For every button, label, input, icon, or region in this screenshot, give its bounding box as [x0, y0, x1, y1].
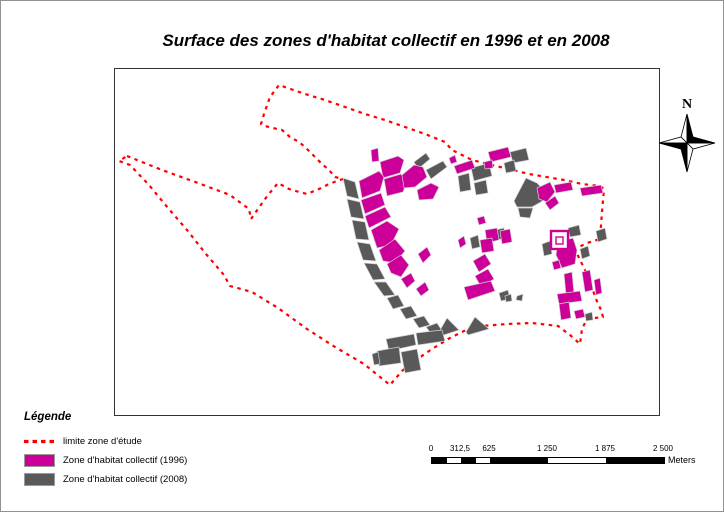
zone-1996-polygon — [402, 165, 427, 188]
zone-2008-polygon — [504, 160, 516, 173]
scale-bar-segment — [606, 458, 664, 463]
zone-1996-polygon — [458, 236, 466, 248]
zone-1996-polygon — [554, 182, 573, 193]
scale-bar-segment — [476, 458, 491, 463]
scale-tick-label: 0 — [429, 444, 433, 453]
zone-1996-polygon — [559, 302, 571, 320]
scale-tick-label: 1 250 — [537, 444, 557, 453]
zone-1996-outline-inner — [556, 237, 563, 244]
zone-2008-polygon — [585, 312, 593, 321]
legend-item-study-limit: limite zone d'étude — [24, 432, 284, 451]
zone-1996-polygon — [557, 291, 582, 304]
zone-2008-polygon — [466, 317, 489, 335]
north-label: N — [656, 97, 718, 113]
scale-bar-segment — [432, 458, 447, 463]
zone-2008-polygon — [516, 294, 523, 301]
north-arrow: N — [656, 97, 718, 185]
scale-bar: 0312,56251 2501 8752 500 Meters — [431, 444, 701, 470]
zone-2008-polygon — [400, 306, 417, 319]
zone-1996-polygon — [484, 160, 493, 169]
scale-unit-label: Meters — [668, 455, 696, 465]
scale-tick-label: 2 500 — [653, 444, 673, 453]
zone-2008-polygon — [458, 173, 471, 192]
zone-1996-polygon — [418, 247, 431, 263]
zone-2008-polygon — [470, 235, 480, 249]
legend-label: Zone d'habitat collectif (2008) — [63, 474, 187, 485]
zone-2008-polygon — [401, 349, 421, 373]
zone-1996-polygon — [582, 270, 593, 292]
zone-1996-polygon — [574, 309, 585, 319]
legend-item-zone-2008: Zone d'habitat collectif (2008) — [24, 470, 284, 489]
zone-2008-polygon — [580, 246, 590, 259]
scale-tick-label: 625 — [482, 444, 495, 453]
zone-2008-polygon — [387, 295, 404, 309]
zone-1996-polygon — [416, 282, 429, 296]
zone-2008-polygon — [374, 282, 395, 296]
zone-2008-polygon — [474, 180, 488, 195]
legend-item-zone-1996: Zone d'habitat collectif (1996) — [24, 451, 284, 470]
scale-bar-strip — [431, 457, 665, 464]
zone-2008-polygon — [364, 263, 385, 280]
zone-2008-polygon — [568, 225, 581, 237]
map-frame — [114, 68, 660, 416]
zone-2008-polygon — [352, 220, 369, 240]
zone-1996-polygon — [449, 155, 457, 164]
zone-1996-polygon — [477, 216, 486, 225]
zone-1996-polygon — [417, 183, 439, 200]
zone-1996-polygon — [580, 185, 603, 196]
zone-1996-polygon — [564, 272, 574, 295]
zone-1996-polygon — [401, 273, 415, 288]
legend-dashed-line-icon — [24, 435, 55, 448]
scale-tick-label: 312,5 — [450, 444, 470, 453]
zone-1996-polygon — [488, 147, 511, 162]
zone-2008-polygon — [596, 228, 607, 242]
legend-title: Légende — [24, 411, 284, 423]
map-canvas — [115, 69, 659, 415]
zone-2008-polygon — [426, 161, 447, 179]
legend-1996-swatch — [24, 454, 55, 467]
legend: Légende limite zone d'étude Zone d'habit… — [24, 411, 284, 489]
zone-2008-polygon — [377, 347, 401, 366]
zone-2008-polygon — [343, 178, 359, 199]
scale-bar-segment — [461, 458, 476, 463]
map-document-page: Surface des zones d'habitat collectif en… — [0, 0, 724, 512]
legend-label: limite zone d'étude — [63, 436, 142, 447]
zone-2008-polygon — [518, 208, 533, 218]
scale-tick-label: 1 875 — [595, 444, 615, 453]
zone-1996-polygon — [371, 148, 379, 162]
scale-bar-segment — [490, 458, 548, 463]
zone-1996-polygon — [480, 238, 494, 253]
zone-1996-polygon — [552, 260, 561, 270]
legend-label: Zone d'habitat collectif (1996) — [63, 455, 187, 466]
zone-2008-polygon — [357, 242, 376, 261]
zone-1996-polygon — [464, 281, 495, 300]
scale-bar-segment — [548, 458, 606, 463]
map-title: Surface des zones d'habitat collectif en… — [114, 31, 658, 51]
scale-bar-segment — [447, 458, 462, 463]
legend-2008-swatch — [24, 473, 55, 486]
zone-1996-polygon — [500, 229, 512, 244]
zone-1996-polygon — [594, 278, 602, 295]
